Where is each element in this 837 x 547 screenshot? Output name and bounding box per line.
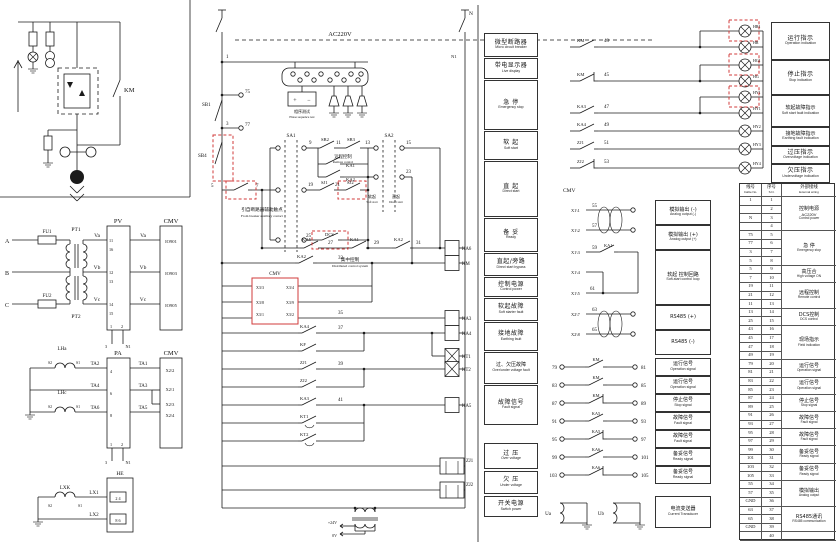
table-group-label: 运行信号Operation signal — [782, 360, 836, 377]
table-cell-line-no — [740, 223, 762, 232]
schematic-label: 87 — [552, 402, 558, 407]
box-label-en: Operation signal — [670, 386, 696, 390]
box-label-en: Soft starter fault — [499, 311, 524, 315]
schematic-label: 41 — [338, 398, 344, 403]
table-group-label: 停止信号Stop signal — [782, 395, 836, 412]
indicator-label-box: 软起故障指示Soft start fault indication — [771, 95, 830, 127]
schematic-label: 引自断路器辅助触点 — [241, 206, 283, 213]
schematic-label: HR1 — [753, 24, 761, 29]
schematic-label: S1 — [76, 361, 80, 365]
schematic-label: S2 — [48, 405, 52, 409]
table-cell-serial-no: 28 — [762, 429, 782, 438]
function-box: 软起故障Soft starter fault — [484, 298, 538, 321]
schematic-label: 相序测试 — [294, 108, 310, 114]
schematic-label: 97 — [641, 438, 647, 443]
table-cell-serial-no: 37 — [762, 507, 782, 516]
schematic-label: 31 — [416, 241, 422, 246]
schematic-label: 23 — [406, 170, 412, 175]
schematic-label: ZJ2 — [300, 378, 308, 383]
schematic-label: 105 — [641, 474, 649, 479]
schematic-label: Phase sequence test — [289, 115, 314, 119]
schematic-label: KM — [577, 72, 584, 77]
table-cell-line-no: 57 — [740, 489, 762, 498]
function-box: 故障信号Fault signal — [484, 385, 538, 425]
schematic-label: 39 — [338, 362, 344, 367]
box-label-en: Operation signal — [670, 368, 696, 372]
schematic-label: 3 — [226, 122, 229, 127]
box-label-en: Earthing fault indication — [782, 137, 818, 141]
schematic-label: 59 — [592, 246, 598, 251]
schematic-label: PV — [114, 218, 123, 225]
table-group-label: 现场指示Field indication — [782, 326, 836, 360]
table-cell-serial-no: 23 — [762, 386, 782, 395]
schematic-label: X3/3 — [256, 285, 264, 290]
schematic-label: X1\4 — [571, 270, 581, 275]
table-cell-line-no: 99 — [740, 446, 762, 455]
schematic-label: HY2 — [753, 124, 761, 129]
schematic-label: 13 — [365, 141, 371, 146]
signal-label-box: 故障信号Fault signal — [655, 412, 711, 430]
schematic-label: KA1 — [350, 237, 360, 242]
schematic-label: KA5 — [592, 429, 601, 434]
cmv-io-label-box: 软起 控制回路Soft-start control loop — [655, 250, 711, 305]
schematic-label: 51 — [604, 141, 610, 146]
schematic-label: KM — [592, 357, 599, 362]
schematic-label: Distributed control system — [332, 264, 368, 268]
schematic-label: 99 — [552, 456, 558, 461]
table-cell-serial-no: 36 — [762, 498, 782, 507]
schematic-label: 9 — [309, 141, 312, 146]
transducer-label-box: 电流变送器Current Transducer — [655, 496, 711, 528]
schematic-label: C — [5, 303, 9, 309]
table-cell-line-no: 87 — [740, 395, 762, 404]
indicator-label-box: 欠压指示Undervoltage indication — [771, 164, 830, 183]
schematic-label: KA6 — [592, 465, 601, 470]
box-label-en: Ready signal — [673, 476, 693, 480]
function-box: 急 停Emergency stop — [484, 80, 538, 130]
schematic-label: SJ2 — [347, 180, 354, 185]
schematic-label: IO905 — [165, 303, 177, 308]
box-label-en: Overvoltage indication — [783, 156, 818, 160]
header-en: Cable No. — [744, 191, 757, 194]
schematic-label: HG1 — [753, 58, 761, 63]
schematic-label: Vc — [140, 297, 147, 303]
table-cell-line-no: 11 — [740, 300, 762, 309]
schematic-label: X2\2 — [166, 368, 175, 373]
box-label-en: Earthing fault — [501, 338, 522, 342]
schematic-label: X2\8 — [571, 332, 581, 337]
schematic-label: 27 — [328, 241, 334, 246]
schematic-label: S2 — [48, 504, 52, 508]
schematic-label: N1 — [451, 54, 457, 59]
box-label-en: Emergency stop — [498, 106, 523, 110]
schematic-label: KA5 — [302, 237, 312, 242]
schematic-label: 75 — [245, 90, 251, 95]
table-header-serial-no: 序号 S.N. — [762, 184, 782, 197]
schematic-label: N1 — [125, 344, 130, 349]
schematic-label: KA4 — [577, 122, 587, 127]
table-group-label: RS485通讯RS485 communication — [782, 507, 836, 533]
table-header-cable-no: 线号 Cable No. — [740, 184, 762, 197]
indicator-label-box: 停止指示Stop indication — [771, 60, 830, 95]
schematic-label: SB1 — [202, 103, 211, 108]
schematic-label: X1\2 — [571, 228, 580, 233]
schematic-label: S2 — [48, 361, 52, 365]
function-box: 备 妥Ready — [484, 218, 538, 252]
schematic-label: 77 — [245, 123, 251, 128]
schematic-label: 45 — [604, 73, 610, 78]
table-cell-line-no: 19 — [740, 283, 762, 292]
schematic-label: 1 — [110, 442, 112, 447]
schematic-label: AC220V — [328, 31, 352, 38]
schematic-label: X3/1 — [256, 312, 264, 317]
table-cell-line-no: 63 — [740, 507, 762, 516]
schematic-label: TA3 — [139, 384, 148, 389]
table-cell-line-no: 103 — [740, 464, 762, 473]
schematic-label: S1 — [76, 405, 80, 409]
schematic-label: KM — [577, 38, 584, 43]
table-cell-line-no: 83 — [740, 378, 762, 387]
schematic-label: 5 — [211, 184, 214, 189]
schematic-label: 1 — [226, 55, 229, 60]
schematic-label: KM — [592, 393, 599, 398]
schematic-label: 7 — [256, 184, 259, 189]
schematic-label: 21 — [335, 183, 341, 188]
schematic-label: 49 — [604, 123, 610, 128]
box-label-en: Over/under voltage fault — [492, 369, 529, 373]
box-label-en: Stop signal — [674, 404, 691, 408]
schematic-label: KT2 — [300, 432, 309, 437]
schematic-label: X2\3 — [166, 402, 176, 407]
box-label-zh: RS485 (-) — [671, 340, 695, 346]
schematic-label: KA3 — [300, 396, 310, 401]
function-box: 控制电源Control power — [484, 277, 538, 297]
schematic-label: KA1 — [346, 163, 356, 168]
schematic-label: X1\1 — [571, 208, 580, 213]
table-cell-line-no: 77 — [740, 240, 762, 249]
signal-label-box: 停止信号Stop signal — [655, 394, 711, 412]
schematic-label: Va — [140, 233, 146, 239]
table-group-label: 急 停Emergency stop — [782, 231, 836, 265]
table-header-external-wiring: 外部接线 External wiring — [782, 184, 836, 197]
schematic-label: CMV — [563, 188, 576, 194]
table-cell-line-no: 65 — [740, 515, 762, 524]
table-cell-serial-no: 5 — [762, 231, 782, 240]
schematic-label: KF — [300, 342, 306, 347]
table-cell-line-no: GND — [740, 524, 762, 533]
external-wiring-table: 线号 Cable No. 序号 S.N. 外部接线 External wirin… — [739, 183, 835, 540]
signal-label-box: 运行信号Operation signal — [655, 376, 711, 394]
table-cell-line-no: 95 — [740, 429, 762, 438]
schematic-label: KM — [462, 262, 470, 267]
table-cell-line-no: 21 — [740, 292, 762, 301]
schematic-label: LX1 — [89, 491, 99, 496]
schematic-label: SA2 — [385, 134, 394, 139]
table-cell-serial-no: 19 — [762, 352, 782, 361]
table-group-label: 故障信号Fault signal — [782, 429, 836, 446]
schematic-label: LHc — [58, 391, 68, 396]
table-cell-line-no: 81 — [740, 369, 762, 378]
table-cell-line-no: 89 — [740, 403, 762, 412]
table-cell-serial-no: 6 — [762, 240, 782, 249]
soft-starter-wiring-diagram: KMABCFU1FU2PT1PT2VaVbVcPVCMV111612131415… — [0, 0, 837, 547]
schematic-label: TA4 — [91, 384, 100, 389]
schematic-label: 12 — [109, 270, 113, 275]
schematic-label: From breaker auxiliary contact — [241, 214, 283, 218]
schematic-label: 11 — [109, 238, 113, 243]
schematic-label: TA1 — [139, 362, 148, 367]
schematic-label: 81 — [641, 366, 647, 371]
table-group-label: 模拟输出Analog output — [782, 481, 836, 507]
schematic-label: KA6 — [462, 247, 472, 252]
schematic-label: 65 — [592, 328, 598, 333]
schematic-label: KA4 — [462, 332, 472, 337]
schematic-label: 95 — [552, 438, 558, 443]
function-box: 开关电源Switch power — [484, 496, 538, 517]
table-cell-serial-no: 14 — [762, 309, 782, 318]
box-label-en: Switch power — [501, 508, 522, 512]
schematic-label: PT2 — [71, 314, 80, 320]
schematic-label: 85 — [641, 384, 647, 389]
schematic-label: X3/8 — [256, 300, 264, 305]
schematic-label: Ub — [598, 512, 605, 517]
schematic-label: 83 — [552, 384, 558, 389]
schematic-label: Vc — [94, 297, 101, 303]
table-cell-serial-no: 20 — [762, 360, 782, 369]
indicator-label-box: 接地故障指示Earthing fault indication — [771, 127, 830, 146]
schematic-label: SB2 — [321, 137, 330, 142]
table-cell-serial-no: 2 — [762, 206, 782, 215]
table-group-label: 备妥信号Ready signal — [782, 464, 836, 481]
schematic-label: KM — [124, 87, 135, 94]
signal-label-box: 故障信号Fault signal — [655, 430, 711, 448]
schematic-label: 2 — [121, 324, 123, 329]
table-cell-serial-no: 8 — [762, 257, 782, 266]
schematic-label: HG — [753, 74, 759, 79]
header-en: S.N. — [769, 191, 775, 194]
table-cell-serial-no: 1 — [762, 197, 782, 206]
schematic-label: Vb — [140, 265, 147, 271]
schematic-label: ZJ1 — [466, 459, 474, 464]
indicator-label-box: 运行指示Operation indication — [771, 22, 830, 60]
table-cell-line-no: 93 — [740, 421, 762, 430]
table-cell-line-no: 45 — [740, 335, 762, 344]
schematic-label: X2\7 — [571, 312, 581, 317]
schematic-label: B — [5, 271, 9, 277]
schematic-label: KA5 — [462, 404, 472, 409]
table-cell-line-no: GND — [740, 498, 762, 507]
schematic-label: 8 6 — [115, 518, 120, 523]
table-cell-serial-no: 29 — [762, 438, 782, 447]
table-cell-line-no: 43 — [740, 326, 762, 335]
schematic-label: 57 — [592, 224, 598, 229]
schematic-label: HR — [753, 40, 759, 45]
schematic-label: KA1 — [604, 243, 613, 248]
schematic-label: 93 — [641, 420, 647, 425]
schematic-label: ZJ1 — [577, 140, 585, 145]
table-cell-line-no: 49 — [740, 352, 762, 361]
schematic-label: ZJ1 — [300, 360, 308, 365]
schematic-label: 集中控制 — [341, 256, 360, 263]
schematic-label: 89 — [641, 402, 647, 407]
box-label-en: Soft start — [504, 147, 518, 151]
table-cell-serial-no: 32 — [762, 464, 782, 473]
schematic-label: 3 — [105, 344, 107, 349]
table-cell-serial-no: 38 — [762, 515, 782, 524]
table-cell-line-no — [740, 206, 762, 215]
signal-label-box: 备妥信号Ready signal — [655, 448, 711, 466]
schematic-label: CMV — [164, 350, 179, 357]
schematic-label: IO901 — [165, 239, 177, 244]
schematic-label: CMV — [269, 272, 281, 277]
table-group-label: 备妥信号Ready signal — [782, 446, 836, 463]
schematic-label: HY4 — [753, 161, 761, 166]
table-cell-line-no — [740, 532, 762, 541]
table-cell-serial-no: 16 — [762, 326, 782, 335]
table-cell-serial-no: 39 — [762, 524, 782, 533]
schematic-label: HY1 — [753, 90, 761, 95]
schematic-label: ZJ2 — [577, 159, 585, 164]
schematic-label: Va — [94, 233, 100, 239]
schematic-label: S1 — [78, 504, 82, 508]
schematic-label: KM — [592, 375, 599, 380]
schematic-label: SB4 — [198, 154, 207, 159]
schematic-label: 2 4 — [115, 496, 121, 501]
table-cell-serial-no: 21 — [762, 369, 782, 378]
table-cell-serial-no: 31 — [762, 455, 782, 464]
table-group-label: 高压合High voltage ON — [782, 266, 836, 283]
table-cell-line-no: 1 — [740, 197, 762, 206]
schematic-label: Vb — [94, 265, 101, 271]
table-cell-line-no: 79 — [740, 360, 762, 369]
schematic-label: A — [5, 239, 10, 245]
box-label-en: Fault signal — [674, 422, 692, 426]
schematic-label: N1 — [125, 460, 130, 465]
schematic-label: 1 — [110, 324, 112, 329]
schematic-label: SB3 — [347, 137, 356, 142]
schematic-label: 19 — [308, 183, 314, 188]
box-label-en: Under voltage — [500, 484, 522, 488]
table-cell-serial-no: 3 — [762, 214, 782, 223]
schematic-label: PA — [114, 350, 122, 357]
function-box: 过 压Over voltage — [484, 443, 538, 469]
schematic-label: 61 — [590, 287, 596, 292]
schematic-label: 91 — [552, 420, 558, 425]
function-box: 欠 压Under voltage — [484, 471, 538, 494]
schematic-label: 47 — [604, 105, 610, 110]
table-group-label: 运行信号Operation signal — [782, 378, 836, 395]
schematic-label: SA1 — [287, 134, 296, 139]
schematic-label: HY1 — [753, 106, 761, 111]
function-box: 微型断路器Micro circuit breaker — [484, 33, 538, 57]
table-cell-serial-no: 30 — [762, 446, 782, 455]
schematic-label: KA6 — [592, 447, 601, 452]
schematic-label: 15 — [406, 141, 412, 146]
table-cell-serial-no: 24 — [762, 395, 782, 404]
box-label-en: Soft start fault indication — [782, 112, 819, 116]
table-group-label: 故障信号Fault signal — [782, 412, 836, 429]
table-cell-line-no: 5 — [740, 266, 762, 275]
table-cell-serial-no: 17 — [762, 335, 782, 344]
table-cell-line-no: 47 — [740, 343, 762, 352]
table-cell-serial-no: 22 — [762, 378, 782, 387]
table-cell-serial-no: 25 — [762, 403, 782, 412]
table-cell-line-no: 91 — [740, 412, 762, 421]
schematic-label: LXK — [60, 486, 71, 491]
table-cell-line-no: 85 — [740, 386, 762, 395]
table-cell-serial-no: 26 — [762, 412, 782, 421]
signal-label-box: 备妥信号Ready signal — [655, 466, 711, 484]
table-cell-line-no: 75 — [740, 231, 762, 240]
box-label-en: Stop indication — [789, 79, 812, 83]
table-cell-line-no: 7 — [740, 274, 762, 283]
box-label-en: Analog output (-) — [670, 213, 696, 217]
schematic-label: TA5 — [139, 406, 148, 411]
schematic-label: X1\5 — [571, 291, 581, 296]
box-label-en: Ready signal — [673, 458, 693, 462]
schematic-label: FU1 — [43, 230, 52, 235]
table-group-label: 远程控制Remote control — [782, 283, 836, 309]
schematic-label: KA3 — [577, 104, 587, 109]
table-cell-line-no: 101 — [740, 455, 762, 464]
schematic-label: 53 — [604, 160, 610, 165]
box-label-en: Live display — [502, 70, 520, 74]
table-cell-serial-no: 33 — [762, 472, 782, 481]
box-label-en: Analog output (+) — [670, 238, 697, 242]
schematic-label: IO903 — [165, 271, 177, 276]
schematic-label: 直起 — [392, 193, 400, 199]
table-cell-line-no: 3 — [740, 249, 762, 258]
schematic-label: HE — [116, 471, 124, 477]
function-box: 带电显示器Live display — [484, 58, 538, 79]
schematic-label: 55 — [592, 204, 598, 209]
schematic-label: 43 — [604, 39, 610, 44]
schematic-label: 103 — [550, 474, 558, 479]
schematic-label: X3/4 — [286, 285, 294, 290]
box-label-en: Current Transducer — [668, 513, 698, 517]
schematic-label: X1\3 — [571, 250, 581, 255]
schematic-label: X3/9 — [286, 300, 294, 305]
cmv-io-label-box: RS485 (+) — [655, 305, 711, 330]
box-label-en: Over voltage — [501, 457, 521, 461]
schematic-label: 软起 — [368, 193, 376, 199]
schematic-label: X2\4 — [166, 413, 176, 418]
function-box: 软 起Soft start — [484, 131, 538, 160]
box-label-en: Fault signal — [502, 406, 520, 410]
box-label-en: Operation indication — [785, 42, 816, 46]
cmv-io-label-box: 模拟输出 (+)Analog output (+) — [655, 225, 711, 250]
schematic-label: N — [469, 11, 473, 17]
schematic-label: 63 — [592, 308, 598, 313]
box-label-en: Undervoltage indication — [782, 175, 819, 179]
header-en: External wiring — [799, 191, 819, 194]
box-label-en: Micro circuit breaker — [495, 46, 527, 50]
schematic-label: SJ1 — [321, 180, 328, 185]
schematic-label: HY3 — [753, 142, 761, 147]
schematic-label: TA6 — [91, 406, 100, 411]
box-label-zh: RS485 (+) — [670, 315, 696, 321]
schematic-label: X3/2 — [286, 312, 294, 317]
box-label-en: Fault signal — [674, 440, 692, 444]
table-cell-serial-no: 15 — [762, 317, 782, 326]
schematic-label: KA2 — [297, 254, 307, 259]
table-cell-serial-no: 11 — [762, 283, 782, 292]
schematic-label: ZJ2 — [466, 483, 474, 488]
schematic-label: 11 — [336, 141, 341, 146]
table-cell-serial-no: 18 — [762, 343, 782, 352]
table-cell-serial-no: 10 — [762, 274, 782, 283]
cmv-io-label-box: 模拟输出 (-)Analog output (-) — [655, 200, 711, 225]
